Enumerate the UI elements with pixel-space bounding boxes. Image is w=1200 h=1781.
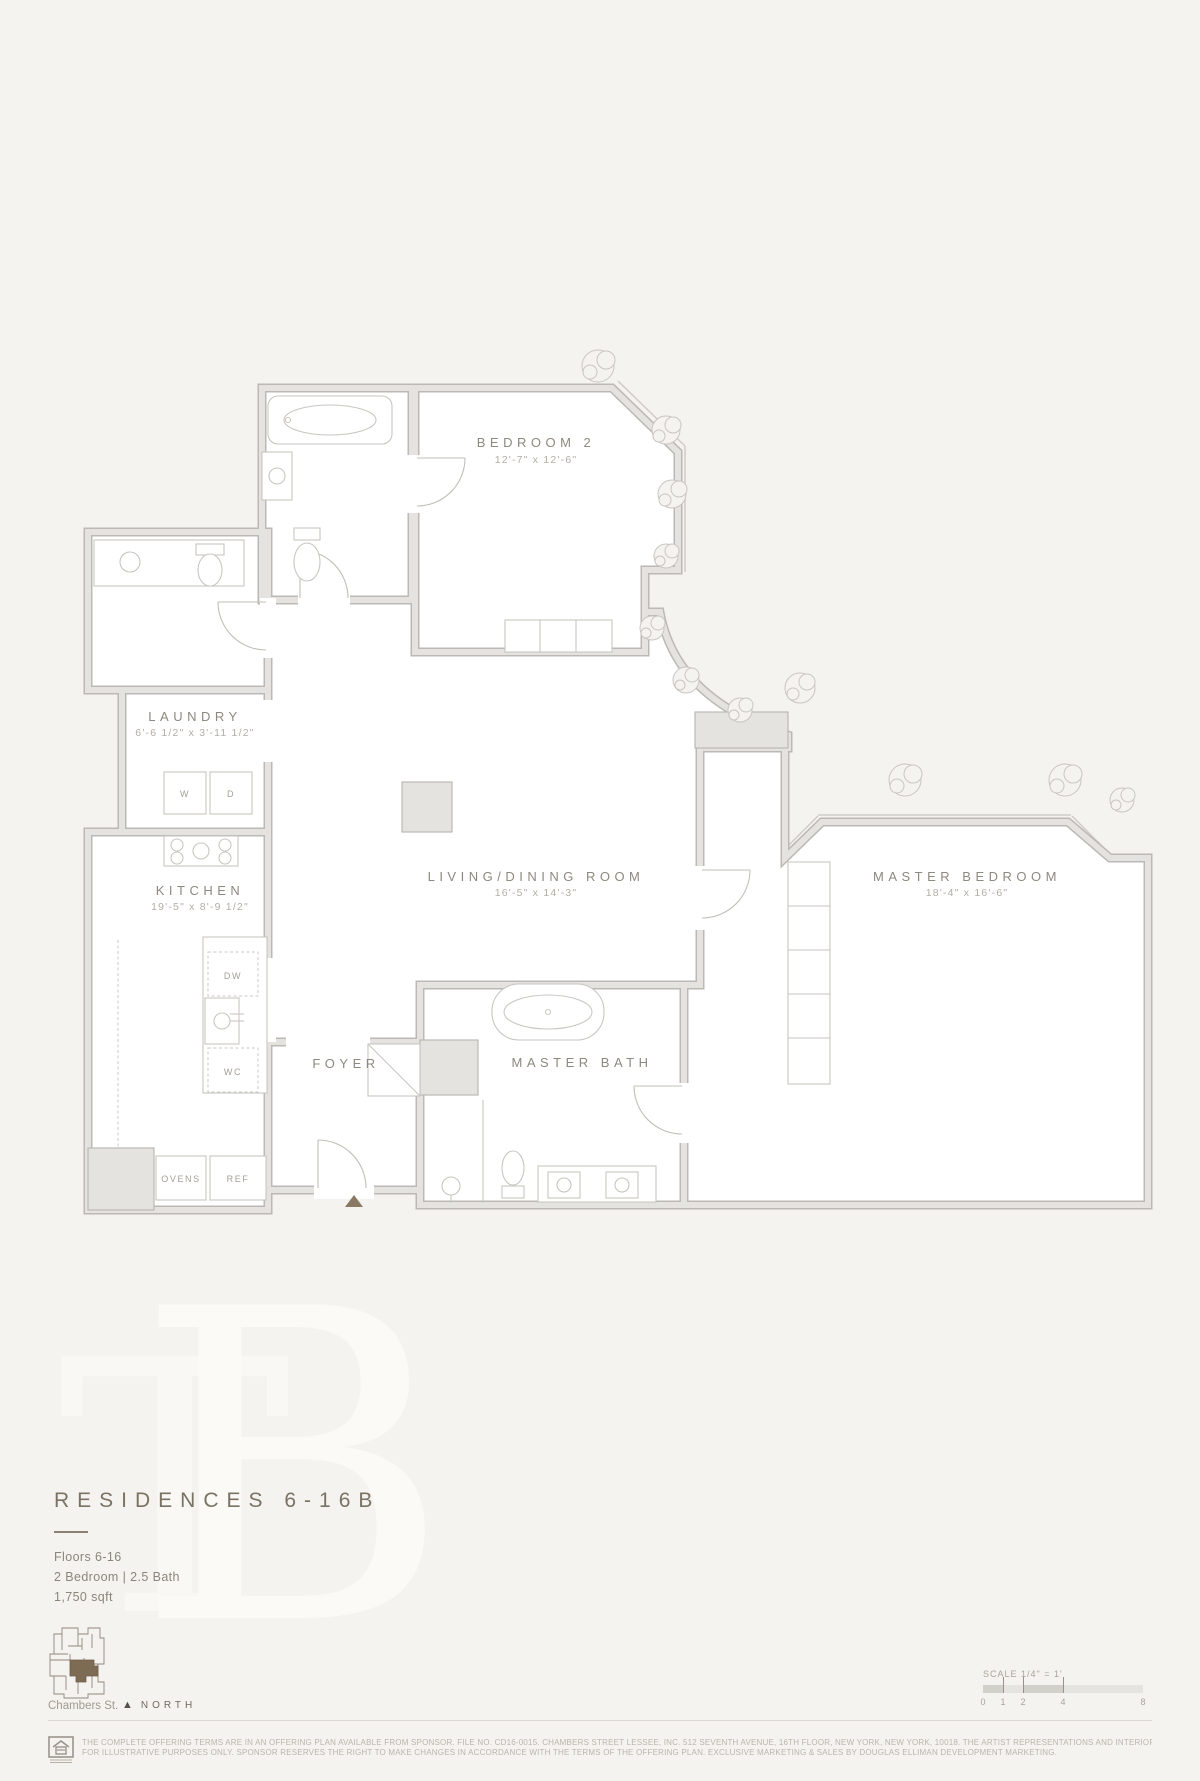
floorplan-page: W D DW bbox=[0, 0, 1200, 1781]
washer-label: W bbox=[180, 789, 190, 799]
disclaimer-line-1: THE COMPLETE OFFERING TERMS ARE IN AN OF… bbox=[82, 1738, 1152, 1748]
bathtub-icon bbox=[268, 396, 392, 444]
north-arrow-icon: ▲ bbox=[122, 1699, 133, 1711]
room-bedroom2-label: BEDROOM 2 bbox=[477, 435, 596, 450]
scale-tick: 4 bbox=[1060, 1697, 1065, 1707]
bed-bath-configuration: 2 Bedroom | 2.5 Bath bbox=[54, 1570, 380, 1584]
sink-icon bbox=[262, 452, 292, 500]
toilet-icon bbox=[502, 1151, 524, 1198]
tree-icon bbox=[673, 667, 699, 693]
dryer-label: D bbox=[227, 789, 235, 799]
tree-icon bbox=[1049, 764, 1082, 796]
north-label: NORTH bbox=[141, 1700, 196, 1711]
room-bedroom2-dims: 12'-7" x 12'-6" bbox=[495, 454, 578, 466]
room-master-bath-label: MASTER BATH bbox=[512, 1055, 653, 1070]
tree-icon bbox=[728, 698, 753, 722]
legal-disclaimer: THE COMPLETE OFFERING TERMS ARE IN AN OF… bbox=[82, 1738, 1152, 1758]
tree-icon bbox=[654, 544, 679, 568]
tree-icon bbox=[785, 673, 815, 703]
highlighted-unit bbox=[70, 1660, 98, 1682]
bedroom2-closet bbox=[505, 620, 612, 652]
tree-icon bbox=[889, 764, 922, 796]
monogram-watermark: B bbox=[135, 1255, 451, 1685]
floors-range: Floors 6-16 bbox=[54, 1550, 380, 1564]
room-foyer-label: FOYER bbox=[312, 1056, 379, 1071]
square-footage: 1,750 sqft bbox=[54, 1590, 380, 1604]
bath-corner-block bbox=[420, 1040, 478, 1095]
kitchen-corner-block bbox=[88, 1148, 154, 1210]
room-laundry-dims: 6'-6 1/2" x 3'-11 1/2" bbox=[135, 727, 254, 739]
street-label: Chambers St. bbox=[48, 1700, 118, 1712]
page-title: RESIDENCES 6-16B bbox=[54, 1489, 380, 1513]
room-master-bedroom-label: MASTER BEDROOM bbox=[873, 869, 1061, 884]
scale-tick: 2 bbox=[1020, 1697, 1025, 1707]
ovens-label: OVENS bbox=[161, 1174, 201, 1184]
double-vanity bbox=[538, 1166, 656, 1202]
toilet-icon bbox=[294, 528, 320, 581]
tree-icon bbox=[582, 350, 615, 382]
scale-tick: 1 bbox=[1000, 1697, 1005, 1707]
room-master-bedroom-dims: 18'-4" x 16'-6" bbox=[926, 887, 1009, 899]
north-indicator: ▲ NORTH bbox=[122, 1699, 196, 1711]
room-living-dims: 16'-5" x 14'-3" bbox=[495, 887, 578, 899]
floor-plan-drawing: W D DW bbox=[0, 0, 1200, 1300]
scale-tick: 8 bbox=[1140, 1697, 1145, 1707]
toilet-icon bbox=[196, 544, 224, 586]
master-closet bbox=[788, 862, 830, 1084]
room-kitchen-label: KITCHEN bbox=[156, 883, 245, 898]
refrigerator-label: REF bbox=[227, 1174, 250, 1184]
footer-divider bbox=[48, 1720, 1152, 1721]
key-plan bbox=[48, 1624, 108, 1702]
scale-bar: SCALE 1/4" = 1' 0 1 2 4 8 bbox=[983, 1669, 1153, 1709]
wine-cooler-label: WC bbox=[224, 1067, 242, 1077]
tree-icon bbox=[658, 480, 687, 508]
scale-numbers: 0 1 2 4 8 bbox=[983, 1697, 1143, 1709]
dishwasher-label: DW bbox=[224, 971, 242, 981]
range-icon bbox=[164, 836, 238, 866]
tree-icon bbox=[1110, 788, 1135, 812]
scale-label: SCALE 1/4" = 1' bbox=[983, 1669, 1153, 1679]
title-divider bbox=[54, 1531, 88, 1533]
room-laundry-label: LAUNDRY bbox=[148, 709, 241, 724]
tree-icon bbox=[640, 616, 665, 640]
column bbox=[402, 782, 452, 832]
scale-tick: 0 bbox=[980, 1697, 985, 1707]
title-block: RESIDENCES 6-16B Floors 6-16 2 Bedroom |… bbox=[54, 1489, 380, 1604]
disclaimer-line-2: FOR ILLUSTRATIVE PURPOSES ONLY. SPONSOR … bbox=[82, 1748, 1152, 1758]
kitchen-island: DW WC bbox=[203, 937, 267, 1093]
tree-icon bbox=[652, 416, 681, 444]
bathtub-icon bbox=[492, 984, 604, 1040]
room-kitchen-dims: 19'-5" x 8'-9 1/2" bbox=[151, 901, 249, 913]
room-living-label: LIVING/DINING ROOM bbox=[428, 869, 645, 884]
equal-housing-logo-icon bbox=[48, 1736, 74, 1764]
powder-room-fixtures bbox=[94, 540, 244, 586]
scale-track bbox=[983, 1685, 1143, 1693]
